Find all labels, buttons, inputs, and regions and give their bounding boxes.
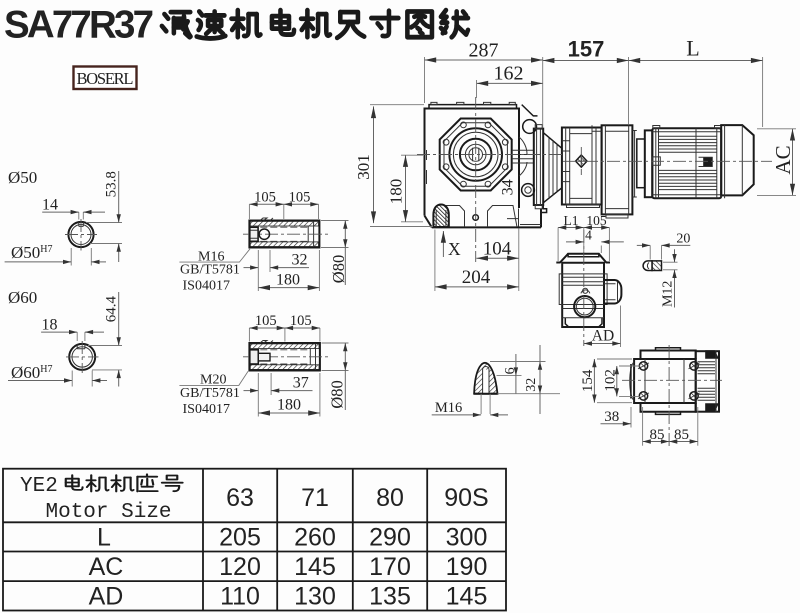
svg-text:Motor Size: Motor Size	[46, 501, 172, 524]
svg-text:290: 290	[369, 524, 411, 552]
svg-text:205: 205	[219, 524, 261, 552]
svg-text:6: 6	[503, 367, 518, 374]
svg-text:BOSERL: BOSERL	[77, 69, 134, 88]
svg-text:AC: AC	[89, 553, 124, 581]
svg-text:287: 287	[469, 40, 499, 62]
svg-text:YE2: YE2	[20, 475, 58, 498]
svg-text:180: 180	[277, 397, 301, 414]
svg-text:IS04017: IS04017	[183, 279, 230, 294]
svg-text:145: 145	[294, 553, 336, 581]
svg-text:37: 37	[293, 375, 309, 392]
svg-text:14: 14	[42, 197, 58, 214]
svg-text:18: 18	[42, 317, 58, 334]
svg-text:120: 120	[219, 553, 261, 581]
svg-text:AD: AD	[592, 328, 614, 345]
svg-text:105: 105	[290, 313, 312, 329]
svg-text:Ø50: Ø50	[8, 168, 37, 187]
svg-text:Ø80: Ø80	[329, 255, 348, 283]
svg-text:180: 180	[387, 179, 406, 205]
svg-text:190: 190	[446, 553, 488, 581]
svg-text:X: X	[448, 239, 461, 259]
svg-text:38: 38	[604, 409, 619, 425]
svg-text:154: 154	[580, 369, 596, 392]
svg-text:4: 4	[585, 228, 592, 243]
svg-text:85: 85	[650, 427, 665, 443]
svg-text:135: 135	[369, 583, 411, 611]
svg-text:AC: AC	[771, 145, 795, 174]
svg-text:260: 260	[294, 524, 336, 552]
svg-text:110: 110	[220, 583, 260, 611]
svg-text:300: 300	[446, 524, 488, 552]
svg-text:104: 104	[483, 239, 512, 260]
svg-text:180: 180	[276, 272, 300, 289]
svg-text:Ø60: Ø60	[8, 288, 37, 307]
svg-text:L1: L1	[564, 213, 579, 228]
svg-text:GB/T5781: GB/T5781	[180, 263, 240, 278]
svg-text:32: 32	[524, 378, 539, 392]
svg-text:32: 32	[292, 252, 308, 269]
svg-text:105: 105	[255, 313, 277, 329]
svg-text:IS04017: IS04017	[183, 402, 230, 417]
svg-text:34: 34	[499, 179, 516, 195]
svg-text:105: 105	[254, 190, 276, 206]
svg-text:162: 162	[494, 63, 524, 85]
svg-text:M16: M16	[435, 400, 462, 416]
svg-text:105: 105	[586, 213, 607, 228]
svg-text:53.8: 53.8	[103, 171, 119, 197]
svg-text:64.4: 64.4	[103, 295, 119, 322]
svg-text:90S: 90S	[444, 484, 488, 512]
svg-text:71: 71	[301, 484, 329, 512]
svg-text:170: 170	[369, 553, 411, 581]
svg-text:20: 20	[676, 232, 690, 247]
svg-text:157: 157	[568, 37, 605, 62]
svg-text:130: 130	[294, 583, 336, 611]
svg-text:M12: M12	[660, 281, 675, 307]
svg-text:AD: AD	[89, 583, 124, 611]
svg-text:L: L	[97, 524, 111, 552]
svg-text:Ø80: Ø80	[328, 380, 347, 408]
svg-text:301: 301	[354, 154, 373, 180]
svg-text:80: 80	[376, 484, 404, 512]
svg-text:85: 85	[674, 427, 689, 443]
svg-text:GB/T5781: GB/T5781	[180, 386, 240, 401]
svg-text:204: 204	[462, 267, 491, 288]
svg-text:L: L	[686, 36, 699, 61]
svg-text:SA77R37: SA77R37	[4, 4, 154, 47]
svg-text:63: 63	[226, 484, 254, 512]
svg-text:145: 145	[446, 583, 488, 611]
svg-text:105: 105	[289, 190, 311, 206]
svg-text:102: 102	[602, 369, 618, 392]
